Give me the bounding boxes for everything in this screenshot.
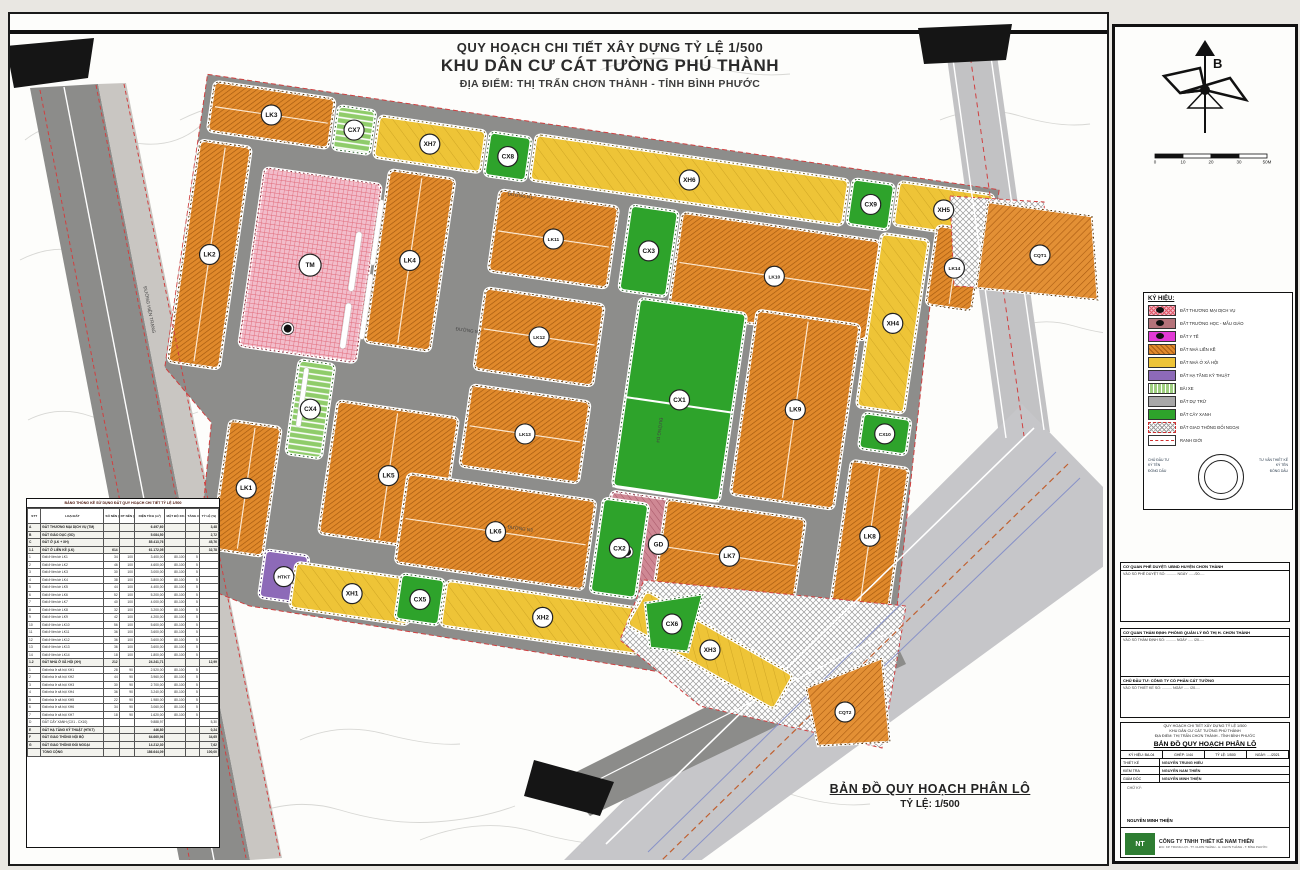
table-row: 2Đất ở liền kề LK2461004.600,0080-1005 xyxy=(28,561,219,569)
svg-text:LK12: LK12 xyxy=(533,335,545,341)
plot-label-LK9: LK9 xyxy=(785,400,805,420)
legend-label: ĐẤT HẠ TẦNG KỸ THUẬT xyxy=(1180,373,1230,378)
legend-item: ĐẤT THƯƠNG MẠI DỊCH VỤ xyxy=(1148,304,1288,317)
project-box: QUY HOẠCH CHI TIẾT XÂY DỰNG TỶ LỆ 1/500K… xyxy=(1120,722,1290,858)
legend-label: RANH GIỚI xyxy=(1180,438,1202,443)
table-row: 6Đất ở liền kề LK6521005.200,0080-1005 xyxy=(28,591,219,599)
table-row: 11Đất ở liền kề LK11361003.600,0080-1005 xyxy=(28,629,219,637)
svg-text:30: 30 xyxy=(1236,160,1242,165)
legend-item: ĐẤT DỰ TRỮ xyxy=(1148,395,1288,408)
table-grid: STTLOẠI ĐẤTSỐ NỀN (nền)DT NỀN (m²)DIỆN T… xyxy=(27,508,219,757)
caption-name: BẢN ĐỒ QUY HOẠCH PHÂN LÔ xyxy=(770,782,1090,796)
legend-item: RANH GIỚI xyxy=(1148,434,1288,447)
approval-line: VÀO SỔ PHÊ DUYỆT SỐ: .......... NGÀY ...… xyxy=(1121,571,1289,577)
svg-text:XH3: XH3 xyxy=(704,647,717,654)
table-row: 7Đất ở liền kề LK7401004.000,0080-1005 xyxy=(28,599,219,607)
plot-label-CX6: CX6 xyxy=(662,614,682,634)
plot-label-CX8: CX8 xyxy=(498,147,518,167)
plot-label-LK13: LK13 xyxy=(515,424,535,444)
name-row: GIÁM ĐỐCNGUYỄN MINH THIỆN xyxy=(1121,774,1289,782)
drawing-name: BẢN ĐỒ QUY HOẠCH PHÂN LÔ xyxy=(1121,738,1289,750)
legend-label: ĐẤT THƯƠNG MẠI DỊCH VỤ xyxy=(1180,308,1235,313)
plot-label-XH5: XH5 xyxy=(934,200,954,220)
svg-text:LK11: LK11 xyxy=(548,237,560,243)
plot-label-CX7: CX7 xyxy=(344,120,364,140)
plot-label-CX3: CX3 xyxy=(639,241,659,261)
title-line1: QUY HOẠCH CHI TIẾT XÂY DỰNG TỶ LỆ 1/500 xyxy=(250,40,970,55)
legend-swatch xyxy=(1148,357,1176,368)
svg-text:LK4: LK4 xyxy=(404,257,417,264)
company-address: Đ/C: KP. TRUNG LỢI - TT. CHƠN THÀNH - H.… xyxy=(1159,845,1289,849)
table-row: EĐẤT HẠ TẦNG KỸ THUẬT (HTKT)446,800,24 xyxy=(28,726,219,734)
table-row: 4Đất nhà ở xã hội XH436903.240,0080-1005 xyxy=(28,689,219,697)
svg-text:XH5: XH5 xyxy=(937,207,950,214)
approval-header: CƠ QUAN PHÊ DUYỆT: UBND HUYỆN CHƠN THÀNH xyxy=(1121,563,1289,571)
plot-label-CQT2: CQT2 xyxy=(835,702,855,722)
legend-label: BÃI XE xyxy=(1180,386,1194,391)
legend-item: ĐẤT NHÀ LIỀN KỀ xyxy=(1148,343,1288,356)
table-row: 5Đất ở liền kề LK5441004.400,0080-1005 xyxy=(28,584,219,592)
plot-label-LK5: LK5 xyxy=(379,466,399,486)
svg-text:CX5: CX5 xyxy=(414,596,427,603)
svg-text:LK3: LK3 xyxy=(265,112,278,119)
north-label: B xyxy=(1213,56,1222,71)
plot-label-LK12: LK12 xyxy=(529,327,549,347)
plot-label-GD: GD xyxy=(648,534,668,554)
svg-text:CX2: CX2 xyxy=(613,545,626,552)
svg-text:XH7: XH7 xyxy=(424,141,437,148)
svg-text:LK13: LK13 xyxy=(519,432,531,438)
plot-label-CX1: CX1 xyxy=(670,390,690,410)
drawing-meta: KÝ HIỆU: BA-04GHÉP: 1/44TỶ LỆ: 1/500NGÀY… xyxy=(1121,750,1289,758)
table-row: 3Đất nhà ở xã hội XH330902.700,0080-1005 xyxy=(28,681,219,689)
legend-item: ĐẤT HẠ TẦNG KỸ THUẬT xyxy=(1148,369,1288,382)
svg-text:LK5: LK5 xyxy=(382,473,395,480)
svg-text:CX3: CX3 xyxy=(642,248,655,255)
meta-cell: GHÉP: 1/44 xyxy=(1163,751,1205,758)
caption-scale: TỶ LỆ: 1/500 xyxy=(770,799,1090,810)
plot-label-LK2: LK2 xyxy=(200,245,220,265)
svg-text:CX10: CX10 xyxy=(879,432,891,438)
table-row: 8Đất ở liền kề LK8321003.200,0080-1005 xyxy=(28,606,219,614)
svg-text:CX7: CX7 xyxy=(348,127,361,134)
svg-text:LK7: LK7 xyxy=(723,553,736,560)
svg-text:LK2: LK2 xyxy=(204,252,217,259)
landuse-statistics-table: BẢNG THỐNG KÊ SỬ DỤNG ĐẤT QUY HOẠCH CHI … xyxy=(26,498,220,848)
legend-label: ĐẤT NHÀ LIỀN KỀ xyxy=(1180,347,1216,352)
meta-cell: KÝ HIỆU: BA-04 xyxy=(1121,751,1163,758)
approval-box: CƠ QUAN PHÊ DUYỆT: UBND HUYỆN CHƠN THÀNH… xyxy=(1120,562,1290,622)
plot-label-LK8: LK8 xyxy=(860,526,880,546)
stamp-seal xyxy=(1198,454,1244,500)
plot-label-CQT1: CQT1 xyxy=(1030,245,1050,265)
legend-label: ĐẤT TRƯỜNG HỌC - MẪU GIÁO xyxy=(1180,321,1244,326)
table-row: AĐẤT THƯƠNG MẠI DỊCH VỤ (TM)6.497,603,48 xyxy=(28,524,219,532)
plot-label-XH3: XH3 xyxy=(700,640,720,660)
plot-label-XH7: XH7 xyxy=(420,134,440,154)
name-row: THIẾT KẾNGUYỄN TRUNG HIẾU xyxy=(1121,758,1289,766)
table-row: 9Đất ở liền kề LK9421004.200,0080-1005 xyxy=(28,614,219,622)
svg-text:LK14: LK14 xyxy=(949,266,961,272)
plot-label-LK3: LK3 xyxy=(261,105,281,125)
table-row: GĐẤT GIAO THÔNG ĐỐI NGOẠI14.212,307,62 xyxy=(28,741,219,749)
title-line3: ĐỊA ĐIỂM: THỊ TRẤN CHƠN THÀNH - TỈNH BÌN… xyxy=(250,78,970,90)
svg-text:LK9: LK9 xyxy=(789,407,802,414)
approval-header: CƠ QUAN THẨM ĐỊNH: PHÒNG QUẢN LÝ ĐÔ THỊ … xyxy=(1121,629,1289,637)
svg-text:LK6: LK6 xyxy=(490,529,503,536)
svg-text:LK8: LK8 xyxy=(864,533,877,540)
legend-swatch xyxy=(1148,305,1176,316)
svg-text:HTKT: HTKT xyxy=(277,575,290,581)
company-footer: NT CÔNG TY TNHH THIẾT KẾ NAM THIÊNĐ/C: K… xyxy=(1121,827,1289,860)
table-row: 7Đất nhà ở xã hội XH718901.620,0080-1005 xyxy=(28,711,219,719)
svg-text:LK1: LK1 xyxy=(240,485,253,492)
table-row: TỔNG CỘNG186.644,09100,00 xyxy=(28,749,219,757)
table-row: FĐẤT GIAO THÔNG NỘI BỘ64.660,9634,65 xyxy=(28,734,219,742)
plot-label-XH1: XH1 xyxy=(342,584,362,604)
stamp-right-text: TƯ VẤN THIẾT KẾKÝ TÊNĐÓNG DẤU xyxy=(1259,458,1288,474)
plot-label-XH4: XH4 xyxy=(883,313,903,333)
legend-item: BÃI XE xyxy=(1148,382,1288,395)
plot-label-LK4: LK4 xyxy=(400,250,420,270)
legend-swatch xyxy=(1148,422,1176,433)
table-row: 5Đất nhà ở xã hội XH522901.980,0080-1005 xyxy=(28,696,219,704)
svg-text:XH4: XH4 xyxy=(887,320,900,327)
plot-label-LK7: LK7 xyxy=(719,546,739,566)
svg-text:CX1: CX1 xyxy=(673,397,686,404)
legend-swatch xyxy=(1148,344,1176,355)
svg-text:CQT2: CQT2 xyxy=(839,710,852,716)
svg-text:XH1: XH1 xyxy=(346,591,359,598)
legend-item: ĐẤT GIAO THÔNG ĐỐI NGOẠI xyxy=(1148,421,1288,434)
signature-area: CHỮ KÝ:NGUYỄN MINH THIỆN xyxy=(1121,782,1289,827)
contour-line xyxy=(240,804,515,822)
approval-box: CHỦ ĐẦU TƯ: CÔNG TY CỔ PHẦN CÁT TƯỜNG VÀ… xyxy=(1120,676,1290,718)
meta-cell: TỶ LỆ: 1/500 xyxy=(1205,751,1247,758)
svg-text:GD: GD xyxy=(654,541,664,548)
svg-text:LK10: LK10 xyxy=(768,274,780,280)
plot-label-LK1: LK1 xyxy=(236,478,256,498)
legend-title: KÝ HIỆU: xyxy=(1148,296,1288,302)
svg-text:CQT1: CQT1 xyxy=(1034,253,1047,259)
plot-label-LK14: LK14 xyxy=(944,258,964,278)
table-row: 2Đất nhà ở xã hội XH244903.960,0080-1005 xyxy=(28,674,219,682)
legend-label: ĐẤT NHÀ Ở XÃ HỘI xyxy=(1180,360,1218,365)
table-row: CĐẤT Ở (LK + XH)85.413,7645,76 xyxy=(28,539,219,547)
plot-label-CX2: CX2 xyxy=(609,538,629,558)
contour-line xyxy=(300,729,460,744)
table-row: 1.2ĐẤT NHÀ Ở XÃ HỘI (XH)21224.241,7112,9… xyxy=(28,659,219,667)
legend-label: ĐẤT DỰ TRỮ xyxy=(1180,399,1206,404)
legend-swatch xyxy=(1148,370,1176,381)
svg-text:CX9: CX9 xyxy=(865,201,878,208)
plot-label-XH6: XH6 xyxy=(679,170,699,190)
legend-swatch xyxy=(1148,318,1176,329)
approval-line: VÀO SỔ THIẾT KẾ SỐ: .......... NGÀY ....… xyxy=(1121,685,1289,691)
legend-item: ĐẤT Y TẾ xyxy=(1148,330,1288,343)
plot-label-CX5: CX5 xyxy=(410,589,430,609)
table-row: 3Đất ở liền kề LK3301003.000,0080-1005 xyxy=(28,569,219,577)
table-row: 4Đất ở liền kề LK4381003.800,0080-1005 xyxy=(28,576,219,584)
planning-map-page: LK3CX7XH7CX8XH6CX9XH5LK2TMLK4LK11CX3LK10… xyxy=(0,0,1300,870)
plot-label-TM: TM xyxy=(299,254,321,276)
title-line2: KHU DÂN CƯ CÁT TƯỜNG PHÚ THÀNH xyxy=(250,56,970,76)
svg-text:10: 10 xyxy=(1180,160,1186,165)
table-row: 1.1ĐẤT Ở LIỀN KỀ (LK)61461.172,0532,78 xyxy=(28,546,219,554)
svg-text:XH6: XH6 xyxy=(683,177,696,184)
map-title: QUY HOẠCH CHI TIẾT XÂY DỰNG TỶ LỆ 1/500 … xyxy=(250,40,970,90)
plot-label-CX9: CX9 xyxy=(861,194,881,214)
svg-text:0: 0 xyxy=(1154,160,1157,165)
stamp-left-text: CHỦ ĐẦU TƯKÝ TÊNĐÓNG DẤU xyxy=(1148,458,1169,474)
table-row: 12Đất ở liền kề LK12361003.600,0080-1005 xyxy=(28,636,219,644)
svg-text:CX8: CX8 xyxy=(502,154,515,161)
table-row: DĐẤT CÂY XANH (CX1 - CX10)9.888,975,30 xyxy=(28,719,219,727)
legend-swatch xyxy=(1148,409,1176,420)
signature-name: NGUYỄN MINH THIỆN xyxy=(1127,818,1173,823)
svg-text:50M: 50M xyxy=(1263,160,1272,165)
legend-label: ĐẤT CÂY XANH xyxy=(1180,412,1211,417)
plot-label-XH2: XH2 xyxy=(533,607,553,627)
legend-swatch xyxy=(1148,383,1176,394)
svg-text:20: 20 xyxy=(1208,160,1214,165)
legend-item: ĐẤT NHÀ Ở XÃ HỘI xyxy=(1148,356,1288,369)
plot-label-HTKT: HTKT xyxy=(274,567,294,587)
approval-header: CHỦ ĐẦU TƯ: CÔNG TY CỔ PHẦN CÁT TƯỜNG xyxy=(1121,677,1289,685)
svg-text:CX4: CX4 xyxy=(304,406,317,413)
legend-item: ĐẤT TRƯỜNG HỌC - MẪU GIÁO xyxy=(1148,317,1288,330)
table-row: 14Đất ở liền kề LK14181001.800,0080-1005 xyxy=(28,651,219,659)
table-row: 10Đất ở liền kề LK10561005.600,0080-1005 xyxy=(28,621,219,629)
table-row: 1Đất nhà ở xã hội XH128902.520,0080-1005 xyxy=(28,666,219,674)
scale-bar: 010203050M xyxy=(1147,148,1282,164)
svg-text:TM: TM xyxy=(305,262,314,269)
legend-swatch xyxy=(1148,396,1176,407)
svg-text:CX6: CX6 xyxy=(666,621,679,628)
plot-label-CX10: CX10 xyxy=(875,424,895,444)
plot-label-LK10: LK10 xyxy=(764,266,784,286)
table-row: BĐẤT GIÁO DỤC (GD)5.084,502,72 xyxy=(28,531,219,539)
table-title: BẢNG THỐNG KÊ SỬ DỤNG ĐẤT QUY HOẠCH CHI … xyxy=(27,499,219,508)
plot-label-LK6: LK6 xyxy=(486,522,506,542)
table-row: 13Đất ở liền kề LK13361003.600,0080-1005 xyxy=(28,644,219,652)
map-caption: BẢN ĐỒ QUY HOẠCH PHÂN LÔ TỶ LỆ: 1/500 xyxy=(770,782,1090,810)
plot-label-LK11: LK11 xyxy=(543,229,563,249)
table-row: 6Đất nhà ở xã hội XH634903.060,0080-1005 xyxy=(28,704,219,712)
legend-swatch xyxy=(1148,435,1176,446)
legend-label: ĐẤT GIAO THÔNG ĐỐI NGOẠI xyxy=(1180,425,1239,430)
meta-cell: NGÀY: ..../2021 xyxy=(1247,751,1289,758)
legend-item: ĐẤT CÂY XANH xyxy=(1148,408,1288,421)
stamp-area: CHỦ ĐẦU TƯKÝ TÊNĐÓNG DẤU TƯ VẤN THIẾT KẾ… xyxy=(1148,450,1288,508)
north-arrow: B xyxy=(1150,38,1260,143)
legend-label: ĐẤT Y TẾ xyxy=(1180,334,1199,339)
name-row: KIỂM TRANGUYỄN NAM THIÊN xyxy=(1121,766,1289,774)
legend-swatch xyxy=(1148,331,1176,342)
legend-box: KÝ HIỆU: ĐẤT THƯƠNG MẠI DỊCH VỤĐẤT TRƯỜN… xyxy=(1143,292,1293,510)
table-row: 1Đất ở liền kề LK1341003.400,0080-1005 xyxy=(28,554,219,562)
approval-line: VÀO SỔ THẨM ĐỊNH SỐ: .......... NGÀY ...… xyxy=(1121,637,1289,643)
road-cap-symbol xyxy=(6,38,94,88)
company-logo: NT xyxy=(1125,833,1155,855)
plot-label-CX4: CX4 xyxy=(300,399,320,419)
svg-text:XH2: XH2 xyxy=(536,614,549,621)
